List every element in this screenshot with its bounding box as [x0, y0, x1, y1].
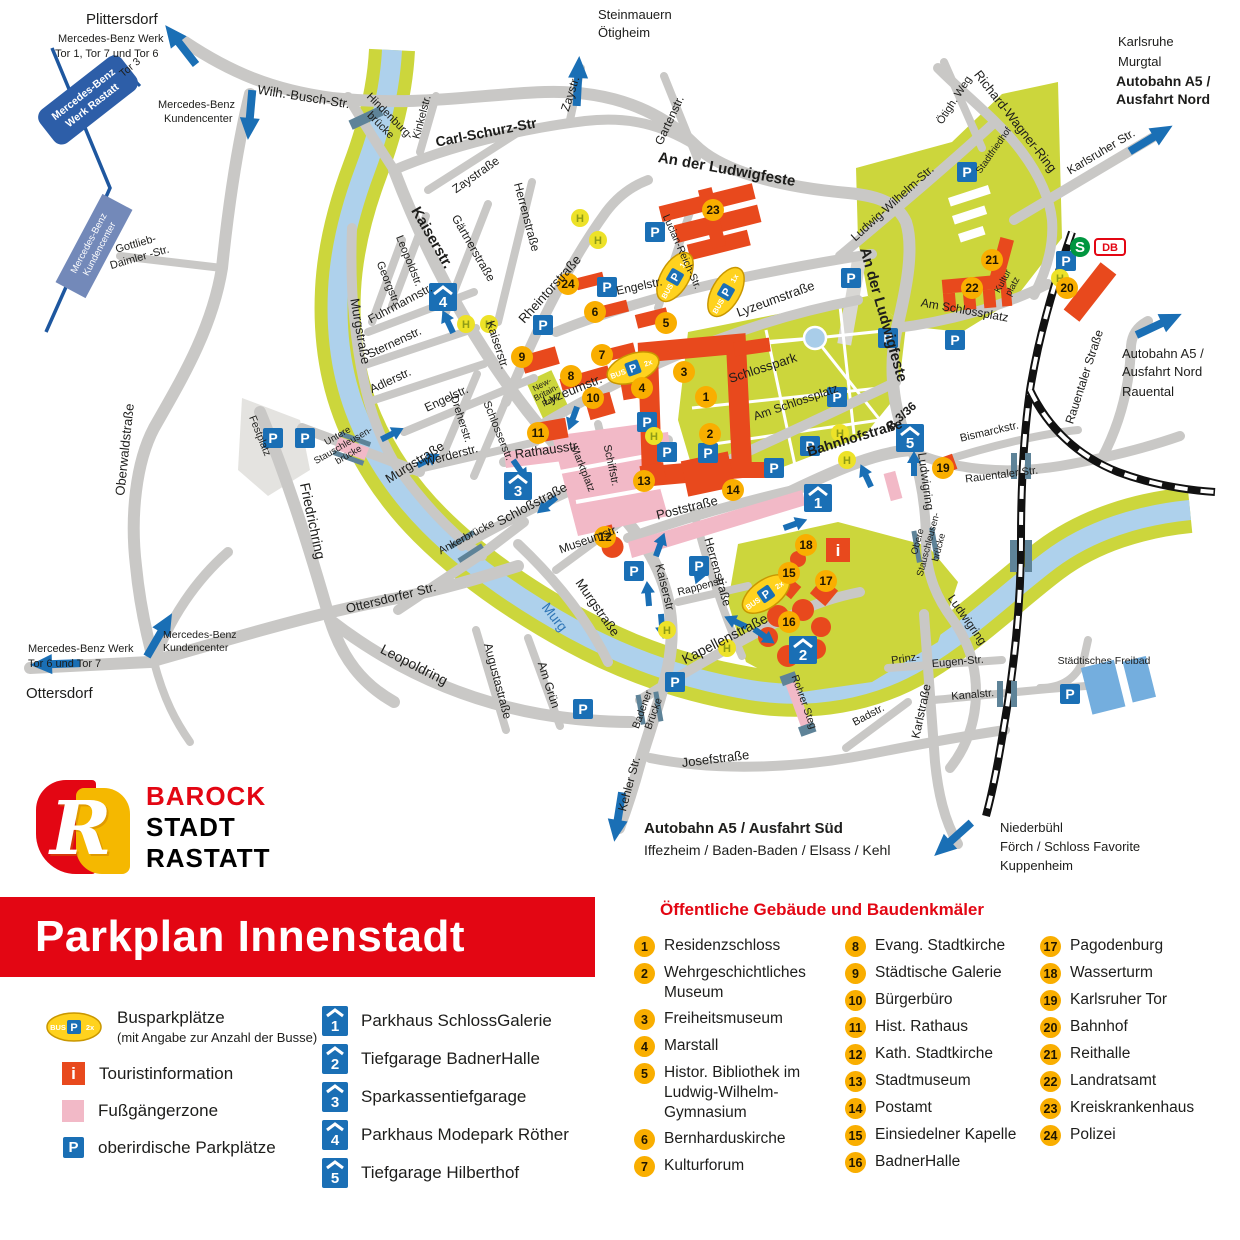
buildings-legend-col3: 17Pagodenburg 18Wasserturm 19Karlsruher …: [1040, 936, 1236, 1146]
svg-text:P: P: [578, 701, 587, 717]
pedestrian-zone-legend-icon: [62, 1100, 84, 1122]
parking-icon: P: [945, 330, 965, 350]
building-legend-item: 22Landratsamt: [1040, 1071, 1236, 1092]
svg-text:H: H: [462, 319, 470, 331]
legend-bus-label: Busparkplätze: [117, 1008, 317, 1028]
svg-text:4: 4: [439, 294, 448, 311]
parking-icon: P: [573, 699, 593, 719]
logo-monogram: R: [36, 780, 130, 874]
building-legend-item: 13Stadtmuseum: [845, 1071, 1041, 1092]
dest-autobahn-nord2: Ausfahrt Nord: [1116, 91, 1210, 107]
building-marker-22: 22: [961, 277, 983, 299]
parkhaus-label: Parkhaus Modepark Röther: [361, 1125, 569, 1145]
building-marker-14: 14: [722, 479, 744, 501]
parkhaus-marker-2: 2: [789, 636, 817, 664]
svg-text:H: H: [663, 625, 671, 637]
svg-text:18: 18: [799, 538, 813, 552]
building-legend-item: 24Polizei: [1040, 1125, 1236, 1146]
building-legend-item: 23Kreiskrankenhaus: [1040, 1098, 1236, 1119]
parkhaus-marker-4: 4: [429, 283, 457, 311]
building-marker-7: 7: [591, 344, 613, 366]
svg-text:10: 10: [586, 391, 600, 405]
buildings-legend-col2: 8Evang. Stadtkirche 9Städtische Galerie …: [845, 936, 1041, 1173]
building-marker-1: 1: [695, 386, 717, 408]
dest-autobahn-nord-r1: Autobahn A5 /: [1122, 346, 1204, 361]
dest-mb-werk1a: Mercedes-Benz Werk: [58, 33, 164, 45]
legend-fussgaengerzone: Fußgängerzone: [62, 1100, 218, 1122]
building-marker-19: 19: [932, 457, 954, 479]
svg-text:P: P: [670, 674, 679, 690]
logo-line-barock: BAROCK: [146, 781, 270, 812]
page-title: Parkplan Innenstadt: [35, 912, 465, 962]
parking-icon: P: [624, 561, 644, 581]
dest-autobahn-sued2: Iffezheim / Baden-Baden / Elsass / Kehl: [644, 842, 890, 858]
dest-mb-werk6a: Mercedes-Benz Werk: [28, 643, 134, 655]
bus-parking-legend-icon: BUS P 2x: [45, 1011, 103, 1043]
dest-niederbuehl3: Kuppenheim: [1000, 858, 1073, 873]
parking-legend-icon: P: [63, 1137, 84, 1158]
svg-text:P: P: [1065, 686, 1074, 702]
legend-pedestrian-label: Fußgängerzone: [98, 1101, 218, 1121]
legend-parking-label: oberirdische Parkplätze: [98, 1138, 276, 1158]
bus-stop-icon: H: [645, 427, 663, 445]
dest-autobahn-nord-r2: Ausfahrt Nord: [1122, 364, 1202, 379]
svg-text:1: 1: [814, 495, 822, 512]
building-legend-item: 21Reithalle: [1040, 1044, 1236, 1065]
building-legend-item: 14Postamt: [845, 1098, 1041, 1119]
building-legend-item: 1Residenzschloss: [634, 936, 838, 957]
legend-parkhaus-1: 1 Parkhaus SchlossGalerie: [322, 1006, 552, 1036]
building-legend-item: 2Wehrgeschichtliches Museum: [634, 963, 838, 1003]
legend-parkhaus-3: 3 Sparkassentiefgarage: [322, 1082, 526, 1112]
building-legend-item: 3Freiheitsmuseum: [634, 1009, 838, 1030]
dest-autobahn-nord1: Autobahn A5 /: [1116, 73, 1210, 89]
dest-mb-werk6b: Tor 6 und Tor 7: [28, 658, 101, 670]
dest-steinmauern: Steinmauern: [598, 7, 672, 22]
building-marker-16: 16: [778, 611, 800, 633]
parkhaus-label: Parkhaus SchlossGalerie: [361, 1011, 552, 1031]
svg-text:P: P: [602, 279, 611, 295]
svg-text:14: 14: [726, 483, 740, 497]
parking-icon: P: [1060, 684, 1080, 704]
svg-text:4: 4: [331, 1132, 340, 1149]
svg-text:P: P: [538, 317, 547, 333]
building-legend-item: 17Pagodenburg: [1040, 936, 1236, 957]
svg-text:P: P: [629, 563, 638, 579]
parkplan-map-poster: Mercedes-Benz Werk Rastatt Mercedes-Benz…: [0, 0, 1240, 1240]
parking-icon: P: [764, 458, 784, 478]
building-legend-item: 9Städtische Galerie: [845, 963, 1041, 984]
svg-text:P: P: [846, 270, 855, 286]
building-legend-item: 16BadnerHalle: [845, 1152, 1041, 1173]
svg-text:2: 2: [707, 427, 714, 441]
svg-text:BUS: BUS: [50, 1023, 66, 1032]
legend-parkplaetze: P oberirdische Parkplätze: [63, 1137, 276, 1158]
svg-text:9: 9: [519, 350, 526, 364]
building-legend-item: 10Bürgerbüro: [845, 990, 1041, 1011]
svg-text:P: P: [70, 1022, 77, 1034]
svg-text:P: P: [769, 460, 778, 476]
parking-icon: P: [689, 556, 709, 576]
sbahn-icon: S: [1070, 237, 1090, 257]
building-marker-18: 18: [795, 534, 817, 556]
street-label: Kaiserstr: [652, 562, 677, 611]
tourist-info-icon: i: [826, 538, 850, 562]
parking-icon: P: [597, 277, 617, 297]
logo-line-rastatt: RASTATT: [146, 843, 270, 874]
svg-text:4: 4: [639, 381, 646, 395]
svg-text:1: 1: [703, 390, 710, 404]
svg-text:P: P: [962, 164, 971, 180]
building-marker-17: 17: [815, 570, 837, 592]
building-marker-9: 9: [511, 346, 533, 368]
dest-kundencenter-top1: Mercedes-Benz: [158, 99, 235, 111]
street-label: Am Grün: [535, 660, 563, 710]
building-marker-20: 20: [1056, 277, 1078, 299]
svg-text:13: 13: [637, 474, 651, 488]
building-marker-2: 2: [699, 423, 721, 445]
building-marker-23: 23: [702, 199, 724, 221]
building-marker-15: 15: [778, 562, 800, 584]
parkhaus-marker-3: 3: [504, 472, 532, 500]
dest-plittersdorf: Plittersdorf: [86, 11, 159, 28]
street-label: Wilh.-Busch-Str.: [257, 82, 351, 111]
bus-stop-icon: H: [658, 621, 676, 639]
svg-text:11: 11: [532, 426, 545, 440]
svg-text:S: S: [1075, 239, 1085, 256]
dest-ottersdorf: Ottersdorf: [26, 685, 94, 702]
svg-text:P: P: [1061, 253, 1070, 269]
svg-text:6: 6: [592, 305, 599, 319]
svg-text:H: H: [843, 455, 851, 467]
legend-touristinfo: i Touristinformation: [62, 1062, 233, 1085]
building-marker-5: 5: [655, 312, 677, 334]
svg-text:3: 3: [331, 1094, 339, 1111]
parking-icon: P: [957, 162, 977, 182]
building-marker-6: 6: [584, 301, 606, 323]
building-legend-item: 15Einsiedelner Kapelle: [845, 1125, 1041, 1146]
svg-text:P: P: [642, 414, 651, 430]
svg-text:P: P: [300, 430, 309, 446]
building-marker-21: 21: [981, 249, 1003, 271]
legend-parkhaus-2: 2 Tiefgarage BadnerHalle: [322, 1044, 540, 1074]
building-legend-item: 20Bahnhof: [1040, 1017, 1236, 1038]
svg-text:i: i: [836, 541, 841, 560]
svg-text:5: 5: [331, 1170, 339, 1187]
parking-icon: P: [295, 428, 315, 448]
dest-karlsruhe: Karlsruhe: [1118, 34, 1174, 49]
svg-text:H: H: [650, 431, 658, 443]
parkhaus-label: Sparkassentiefgarage: [361, 1087, 526, 1107]
svg-text:7: 7: [599, 348, 606, 362]
parking-icon: P: [533, 315, 553, 335]
building-marker-13: 13: [633, 470, 655, 492]
dest-murgtal: Murgtal: [1118, 54, 1161, 69]
svg-text:2: 2: [331, 1056, 339, 1073]
place-label-freibad: Städtisches Freibad: [1058, 655, 1151, 667]
logo-letter: R: [50, 782, 112, 874]
street-label: Rauentaler Straße: [1062, 328, 1106, 426]
db-icon: DB: [1095, 239, 1125, 255]
building-marker-3: 3: [673, 361, 695, 383]
dest-kundencenter-s1: Mercedes-Benz: [163, 629, 237, 641]
logo-line-stadt: STADT: [146, 812, 270, 843]
parking-icon: P: [657, 442, 677, 462]
building-legend-item: 5Histor. Bibliothek im Ludwig-Wilhelm-Gy…: [634, 1063, 838, 1123]
dest-niederbuehl2: Förch / Schloss Favorite: [1000, 839, 1140, 854]
svg-text:P: P: [650, 224, 659, 240]
svg-text:19: 19: [936, 461, 950, 475]
svg-text:3: 3: [514, 483, 522, 500]
building-legend-item: 8Evang. Stadtkirche: [845, 936, 1041, 957]
legend-busparkplaetze: BUS P 2x Busparkplätze (mit Angabe zur A…: [45, 1008, 317, 1045]
svg-text:H: H: [576, 213, 584, 225]
svg-text:DB: DB: [1102, 242, 1118, 254]
svg-text:P: P: [694, 558, 703, 574]
svg-text:P: P: [703, 445, 712, 461]
parking-icon: P: [665, 672, 685, 692]
building-legend-item: 18Wasserturm: [1040, 963, 1236, 984]
bus-stop-icon: H: [838, 451, 856, 469]
building-legend-item: 4Marstall: [634, 1036, 838, 1057]
svg-text:3: 3: [681, 365, 688, 379]
svg-text:17: 17: [819, 574, 833, 588]
parking-icon: P: [841, 268, 861, 288]
street-label: Gärtnerstraße: [449, 212, 499, 284]
parking-icon: P: [645, 222, 665, 242]
legend-info-label: Touristinformation: [99, 1064, 233, 1084]
logo-text: BAROCK STADT RASTATT: [146, 781, 270, 874]
road-kundencenter-s: [154, 662, 190, 742]
bus-stop-icon: H: [589, 231, 607, 249]
building-legend-item: 19Karlsruher Tor: [1040, 990, 1236, 1011]
svg-text:21: 21: [985, 253, 999, 267]
svg-text:H: H: [594, 235, 602, 247]
parkhaus-label: Tiefgarage BadnerHalle: [361, 1049, 540, 1069]
svg-text:5: 5: [906, 435, 914, 452]
building-marker-4: 4: [631, 377, 653, 399]
svg-text:5: 5: [663, 316, 670, 330]
building-marker-11: 11: [527, 422, 549, 444]
svg-text:P: P: [950, 332, 959, 348]
legend-bus-sublabel: (mit Angabe zur Anzahl der Busse): [117, 1030, 317, 1045]
street-label: An der Ludwigfeste: [657, 149, 797, 190]
svg-text:23: 23: [706, 203, 720, 217]
street-label: Kanalstr.: [951, 687, 995, 703]
bus-stop-icon: H: [457, 315, 475, 333]
legend-parkhaus-4: 4 Parkhaus Modepark Röther: [322, 1120, 569, 1150]
dest-mb-werk1b: Tor 1, Tor 7 und Tor 6: [55, 48, 159, 60]
park-pond: [804, 327, 826, 349]
buildings-legend-title: Öffentliche Gebäude und Baudenkmäler: [660, 900, 984, 920]
dest-autobahn-sued1: Autobahn A5 / Ausfahrt Süd: [644, 820, 843, 837]
svg-text:1: 1: [331, 1018, 339, 1035]
svg-text:2x: 2x: [86, 1023, 95, 1032]
svg-text:2: 2: [799, 647, 807, 664]
parkhaus-label: Tiefgarage Hilberthof: [361, 1163, 519, 1183]
dest-oetigheim: Ötigheim: [598, 25, 650, 40]
buildings-legend-col1: 1Residenzschloss 2Wehrgeschichtliches Mu…: [634, 936, 838, 1177]
title-banner: Parkplan Innenstadt: [0, 897, 595, 977]
bus-stop-icon: H: [571, 209, 589, 227]
dest-kundencenter-top2: Kundencenter: [164, 113, 233, 125]
building-legend-item: 12Kath. Stadtkirche: [845, 1044, 1041, 1065]
svg-text:P: P: [662, 444, 671, 460]
svg-text:22: 22: [965, 281, 979, 295]
mercedes-area: Mercedes-Benz Werk Rastatt Mercedes-Benz…: [34, 48, 142, 332]
building-legend-item: 11Hist. Rathaus: [845, 1017, 1041, 1038]
dest-niederbuehl1: Niederbühl: [1000, 820, 1063, 835]
parkhaus-marker-1: 1: [804, 484, 832, 512]
legend-parkhaus-5: 5 Tiefgarage Hilberthof: [322, 1158, 519, 1188]
svg-text:20: 20: [1060, 281, 1074, 295]
parking-icon: P: [698, 443, 718, 463]
city-map: Mercedes-Benz Werk Rastatt Mercedes-Benz…: [0, 0, 1240, 895]
road-oberwaldstrasse: [134, 94, 250, 662]
building-legend-item: 6Bernharduskirche: [634, 1129, 838, 1150]
barock-stadt-rastatt-logo: R BAROCK STADT RASTATT: [36, 780, 270, 874]
dest-kundencenter-s2: Kundencenter: [163, 642, 229, 654]
building-legend-item: 7Kulturforum: [634, 1156, 838, 1177]
svg-text:15: 15: [782, 566, 796, 580]
tourist-info-legend-icon: i: [62, 1062, 85, 1085]
dest-rauental: Rauental: [1122, 384, 1174, 399]
svg-text:16: 16: [782, 615, 796, 629]
